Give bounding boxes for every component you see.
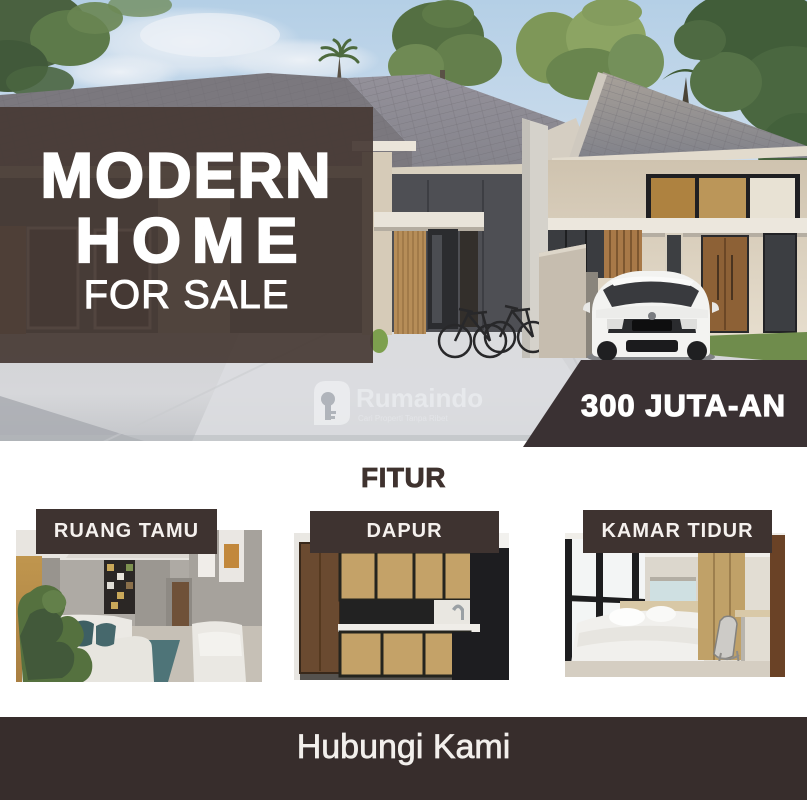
svg-text:Cari Properti Tanpa Ribet: Cari Properti Tanpa Ribet — [358, 414, 448, 423]
svg-text:Rumaindo: Rumaindo — [356, 383, 483, 413]
